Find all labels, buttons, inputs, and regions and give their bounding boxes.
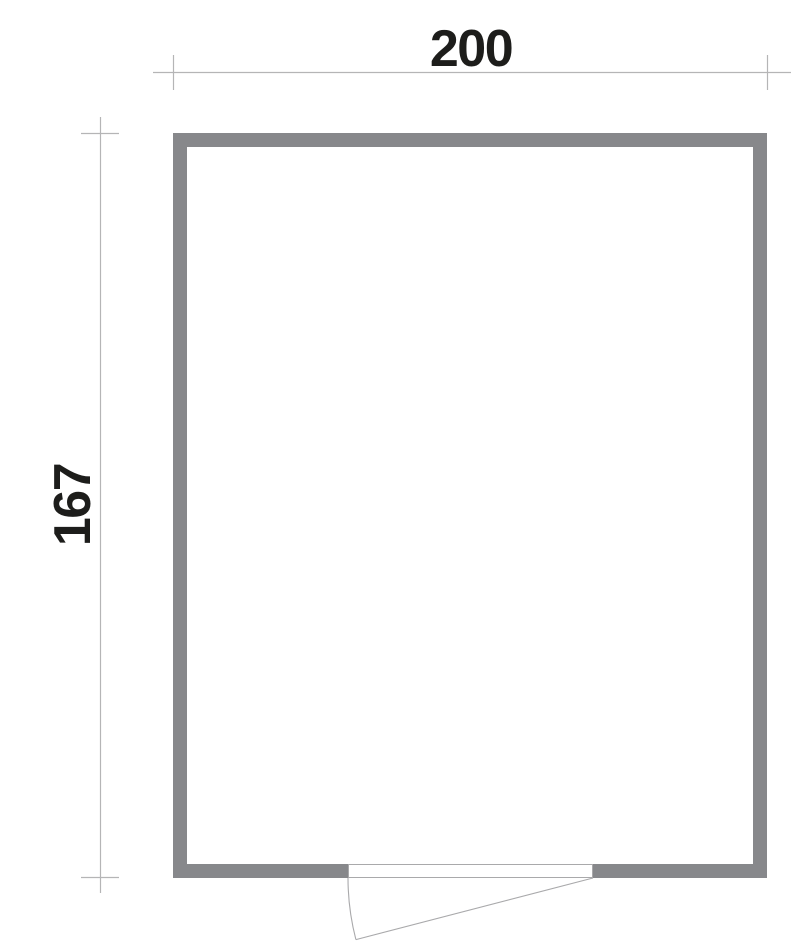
wall-bottom-right-segment: [593, 864, 767, 878]
walls: [173, 133, 767, 878]
width-dimension-label: 200: [430, 20, 512, 78]
wall-right: [753, 147, 767, 864]
door-swing-arc: [348, 878, 356, 940]
wall-top: [173, 133, 767, 147]
top-dimension: 200: [153, 20, 791, 90]
wall-left: [173, 147, 187, 864]
door-panel-line: [356, 878, 593, 940]
left-dimension: 167: [44, 117, 119, 893]
wall-bottom-left-segment: [173, 864, 348, 878]
height-dimension-label: 167: [44, 464, 102, 546]
door-symbol: [348, 865, 593, 940]
floor-plan-drawing: 200 167: [0, 0, 800, 943]
floor-plan-canvas: 200 167: [0, 0, 800, 943]
door-leaf: [349, 865, 593, 878]
